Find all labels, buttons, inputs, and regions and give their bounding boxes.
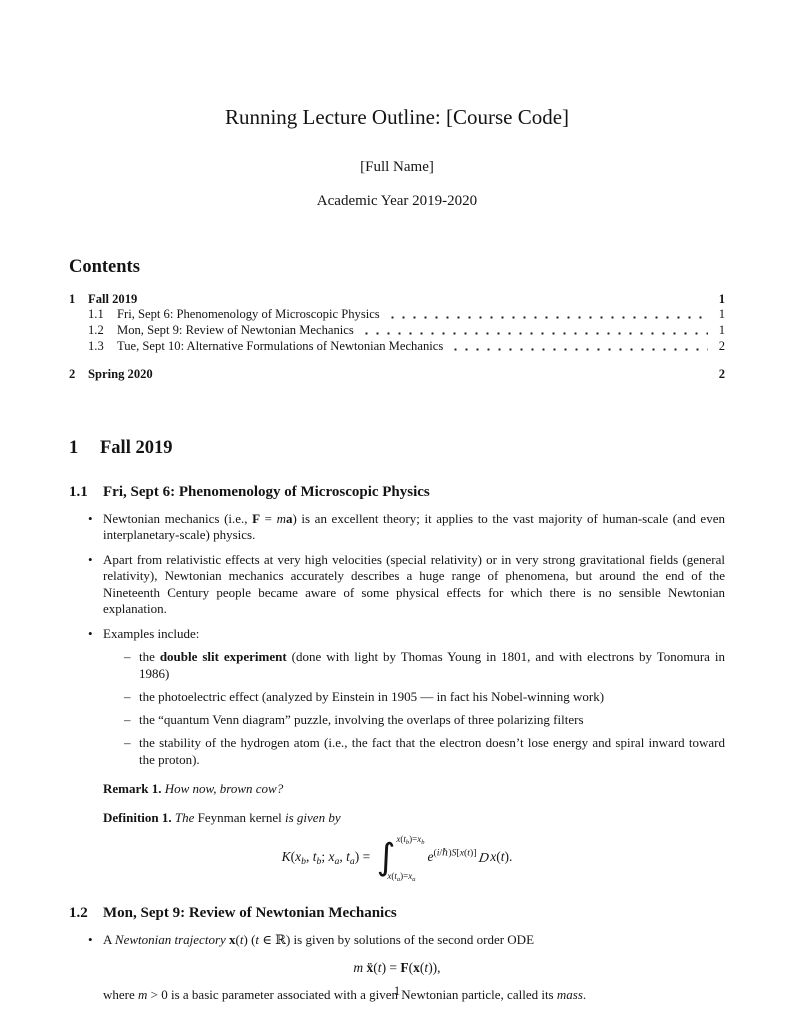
sub-bullet-text: the “quantum Venn diagram” puzzle, invol… [139, 712, 584, 727]
subsection-heading-1-2: 1.2 Mon, Sept 9: Review of Newtonian Mec… [69, 904, 725, 923]
table-of-contents: 1 Fall 2019 1 1.1 Fri, Sept 6: Phenomeno… [69, 292, 725, 383]
subsection-number: 1.1 [69, 483, 103, 502]
sub-bullet-list: – the double slit experiment (done with … [103, 649, 725, 768]
sub-bullet-item: – the “quantum Venn diagram” puzzle, inv… [103, 712, 725, 728]
sub-bullet-text: the double slit experiment (done with li… [139, 649, 725, 680]
bullet-icon: • [88, 932, 93, 948]
sub-bullet-item: – the stability of the hydrogen atom (i.… [103, 735, 725, 768]
toc-page-number: 2 [713, 367, 725, 383]
document-page: Running Lecture Outline: [Course Code] [… [0, 0, 794, 1028]
toc-dot-leader [384, 307, 708, 323]
toc-page-number: 1 [713, 307, 725, 323]
toc-number: 1.1 [88, 307, 117, 323]
section-title: Fall 2019 [100, 437, 172, 460]
dash-icon: – [124, 649, 131, 665]
sub-bullet-text: the photoelectric effect (analyzed by Ei… [139, 689, 604, 704]
toc-leader [141, 292, 708, 308]
document-author: [Full Name] [69, 158, 725, 177]
toc-number: 1.2 [88, 323, 117, 339]
toc-page-number: 2 [713, 339, 725, 355]
toc-entry-fall-2019: 1 Fall 2019 1 [69, 292, 725, 308]
toc-title: Tue, Sept 10: Alternative Formulations o… [117, 339, 443, 355]
definition-1: Definition 1. The Feynman kernel is give… [103, 810, 725, 826]
toc-page-number: 1 [713, 323, 725, 339]
contents-heading: Contents [69, 256, 725, 279]
bullet-text: Newtonian mechanics (i.e., F = ma) is an… [103, 511, 725, 542]
sub-bullet-item: – the double slit experiment (done with … [103, 649, 725, 682]
subsection-number: 1.2 [69, 904, 103, 923]
toc-leader [157, 367, 708, 383]
dash-icon: – [124, 689, 131, 705]
toc-entry-1-2: 1.2 Mon, Sept 9: Review of Newtonian Mec… [69, 323, 725, 339]
document-date: Academic Year 2019-2020 [69, 192, 725, 211]
dash-icon: – [124, 712, 131, 728]
toc-entry-1-1: 1.1 Fri, Sept 6: Phenomenology of Micros… [69, 307, 725, 323]
toc-dot-leader [358, 323, 708, 339]
dash-icon: – [124, 735, 131, 751]
toc-number: 2 [69, 367, 88, 383]
subsection-heading-1-1: 1.1 Fri, Sept 6: Phenomenology of Micros… [69, 483, 725, 502]
bullet-item: • Apart from relativistic effects at ver… [69, 552, 725, 617]
bullet-icon: • [88, 626, 93, 642]
toc-number: 1 [69, 292, 88, 308]
document-title: Running Lecture Outline: [Course Code] [69, 0, 725, 130]
toc-page-number: 1 [713, 292, 725, 308]
subsection-title: Mon, Sept 9: Review of Newtonian Mechani… [103, 904, 397, 923]
toc-entry-1-3: 1.3 Tue, Sept 10: Alternative Formulatio… [69, 339, 725, 355]
sub-bullet-text: the stability of the hydrogen atom (i.e.… [139, 735, 725, 766]
remark-1: Remark 1. How now, brown cow? [103, 781, 725, 797]
subsection-title: Fri, Sept 6: Phenomenology of Microscopi… [103, 483, 430, 502]
feynman-kernel-equation: K(xb, tb; xa, ta) = ∫x(tb)=xbx(ta)=xae(i… [69, 835, 725, 881]
bullet-text: Apart from relativistic effects at very … [103, 552, 725, 616]
toc-title: Fri, Sept 6: Phenomenology of Microscopi… [117, 307, 380, 323]
bullet-text: Examples include: [103, 626, 199, 641]
bullet-text: A Newtonian trajectory x(t) (t ∈ ℝ) is g… [103, 932, 534, 947]
bullet-icon: • [88, 552, 93, 568]
toc-dot-leader [447, 339, 708, 355]
section-number: 1 [69, 437, 100, 460]
sub-bullet-item: – the photoelectric effect (analyzed by … [103, 689, 725, 705]
toc-entry-spring-2020: 2 Spring 2020 2 [69, 367, 725, 383]
newton-equation: m ẍ(t) = F(x(t)), [69, 961, 725, 975]
bullet-item: • Examples include: [69, 626, 725, 642]
bullet-item: • A Newtonian trajectory x(t) (t ∈ ℝ) is… [69, 932, 725, 948]
toc-title: Fall 2019 [88, 292, 137, 308]
section-heading-fall-2019: 1 Fall 2019 [69, 437, 725, 460]
page-number: 1 [0, 984, 794, 1000]
toc-number: 1.3 [88, 339, 117, 355]
toc-title: Mon, Sept 9: Review of Newtonian Mechani… [117, 323, 354, 339]
bullet-item: • Newtonian mechanics (i.e., F = ma) is … [69, 511, 725, 544]
toc-title: Spring 2020 [88, 367, 153, 383]
bullet-icon: • [88, 511, 93, 527]
